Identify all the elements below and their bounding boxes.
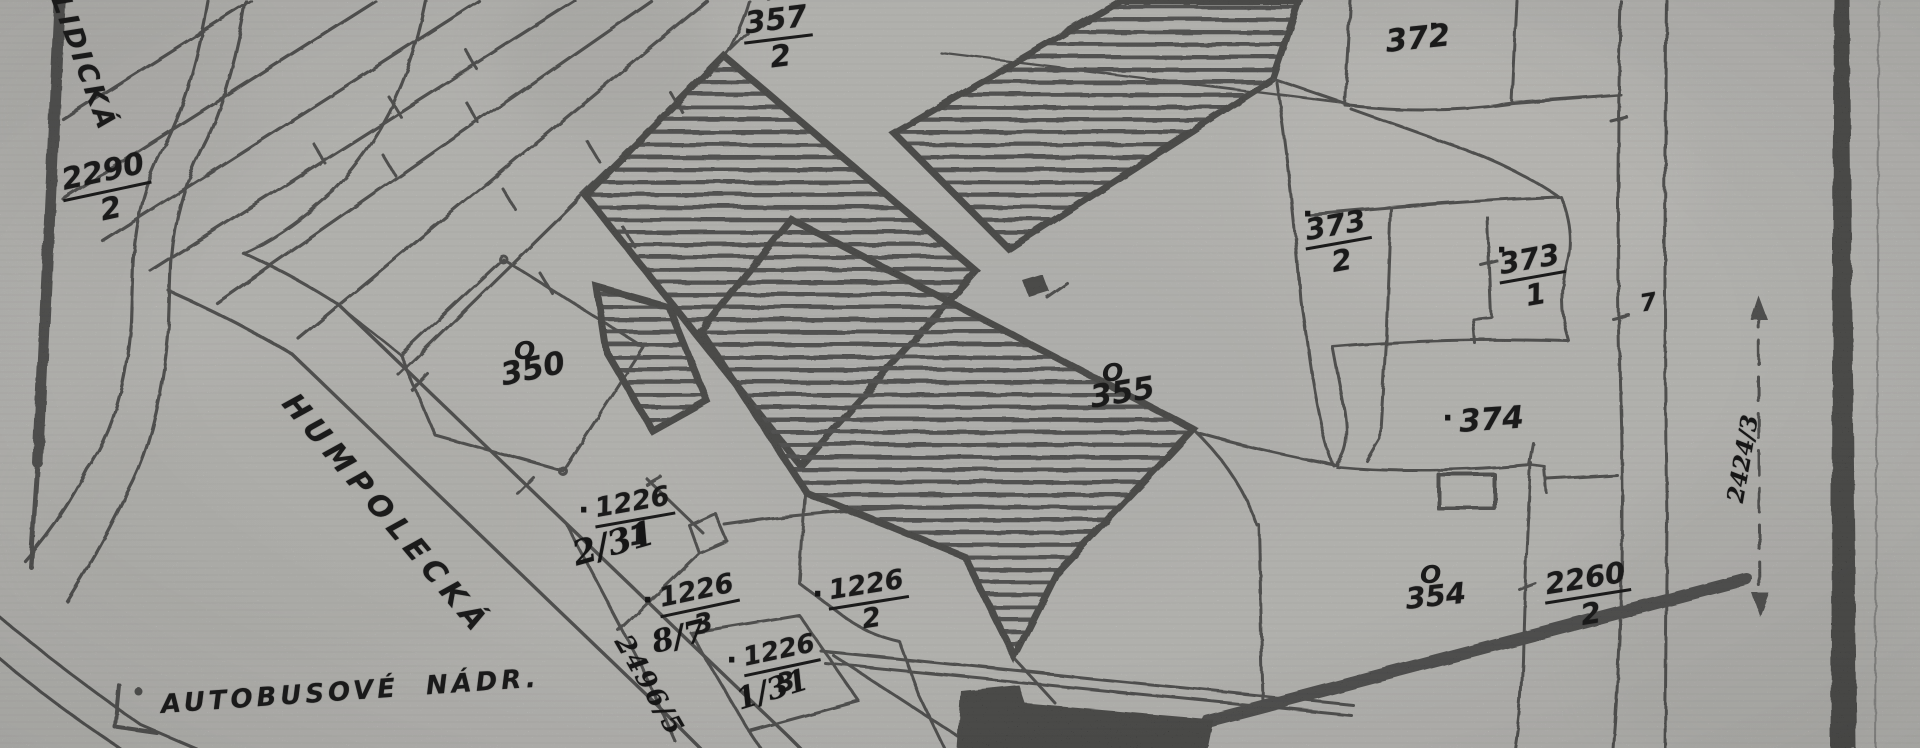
cadastral-map-scan: LIDICKÁ 2290 2 II 357 2 · 372 · 373 2 · … (0, 0, 1920, 748)
map-line-work (0, 0, 1920, 748)
parcel-label-1226-2: 1226 2 (824, 565, 914, 640)
parcel-label-373-2: 373 2 (1300, 204, 1377, 281)
house-dot-1226-3a: · (642, 586, 653, 616)
parcel-357-denominator: 2 (768, 39, 793, 74)
house-dot-1226-2: · (812, 580, 823, 610)
parcel-label-354: 354 (1404, 578, 1467, 615)
parcel-373-2-denominator: 2 (1329, 243, 1354, 277)
parcel-label-373-1: 373 1 (1494, 238, 1571, 315)
parcel-2290-denominator: 2 (97, 190, 124, 226)
house-dot-1226-1: · (578, 496, 589, 526)
parcel-1226-2-denominator: 2 (860, 603, 883, 635)
house-dot-1226-3b: · (726, 646, 737, 676)
parcel-2260-denominator: 2 (1578, 597, 1603, 631)
parcel-label-357-2: II 357 2 (738, 0, 817, 77)
scan-grain (0, 0, 1920, 748)
house-dot-374: · (1442, 404, 1453, 434)
parcel-357-numerator: 357 (740, 0, 813, 45)
parcel-label-374: 374 (1458, 401, 1525, 438)
parcel-label-2260-2: 2260 2 (1540, 556, 1636, 636)
parcel-373-1-denominator: 1 (1523, 277, 1548, 311)
parcel-label-372: 372 (1384, 19, 1452, 58)
